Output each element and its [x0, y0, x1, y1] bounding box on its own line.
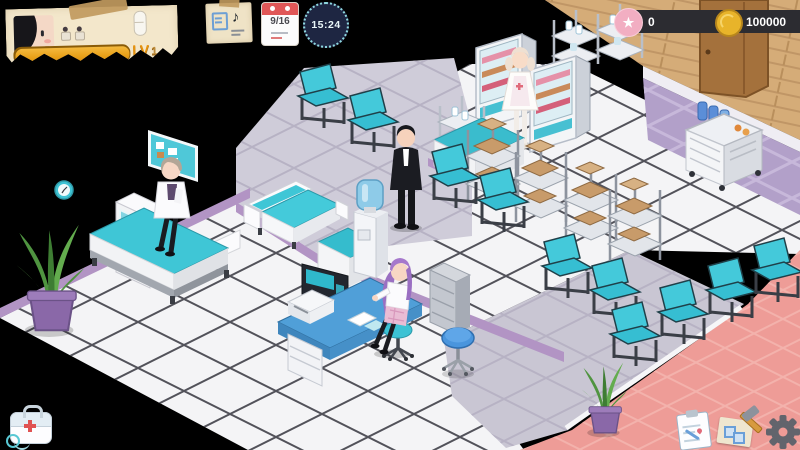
blueprint-cube: [733, 432, 745, 444]
coin-counter[interactable]: 100000: [716, 10, 800, 33]
calendar-header: [262, 3, 298, 15]
xp-progress-bar: [13, 44, 130, 65]
avatar-cheek: [44, 39, 51, 43]
clock-button[interactable]: 15:24: [303, 2, 349, 48]
level-value: 1: [151, 45, 157, 57]
star-counter-value: 0: [648, 15, 655, 29]
note-line: [231, 34, 240, 36]
calendar-line: [271, 32, 288, 34]
avatar-eye: [41, 30, 44, 36]
mini-calendar-icon: [212, 12, 229, 31]
medkit-button[interactable]: [8, 402, 56, 446]
star-icon: ★: [614, 8, 643, 37]
mini-figure-icon: [61, 27, 70, 41]
coin-icon: [715, 9, 743, 37]
clock-time: 15:24: [311, 19, 340, 31]
coin-counter-value: 100000: [746, 15, 786, 29]
level-badge: LV1: [132, 41, 157, 58]
level-label: LV: [132, 42, 149, 58]
mini-figure-icon: [75, 26, 84, 40]
clipboard-button[interactable]: [676, 411, 712, 450]
calendar-line: [271, 37, 282, 39]
player-status-card[interactable]: LV1: [5, 3, 185, 72]
clipboard-clip: [685, 409, 698, 417]
game-viewport: LV1 ♪ 9/16 15:24 ★ 0 100000: [0, 0, 800, 450]
build-hammer-button[interactable]: [716, 407, 764, 449]
filing-cabinet[interactable]: [430, 263, 470, 334]
wall-clock[interactable]: [55, 181, 73, 199]
calendar-ring: [270, 6, 275, 11]
capsule-icon: [133, 11, 147, 36]
calendar-ring: [285, 6, 290, 11]
music-note-icon: ♪: [232, 9, 240, 26]
calendar-date: 9/16: [262, 16, 298, 27]
note-line: [231, 29, 244, 31]
xp-progress-fill: [15, 46, 129, 64]
water-cooler[interactable]: [354, 180, 388, 278]
medkit-handle: [23, 405, 43, 418]
tape-decoration: [219, 0, 240, 8]
door-knob: [706, 50, 711, 55]
calendar-button[interactable]: 9/16: [261, 2, 299, 46]
red-cross-icon: [28, 420, 32, 432]
gear-icon: [764, 414, 800, 450]
music-note-paper-button[interactable]: ♪: [205, 2, 252, 44]
settings-gear-button[interactable]: [764, 414, 800, 450]
